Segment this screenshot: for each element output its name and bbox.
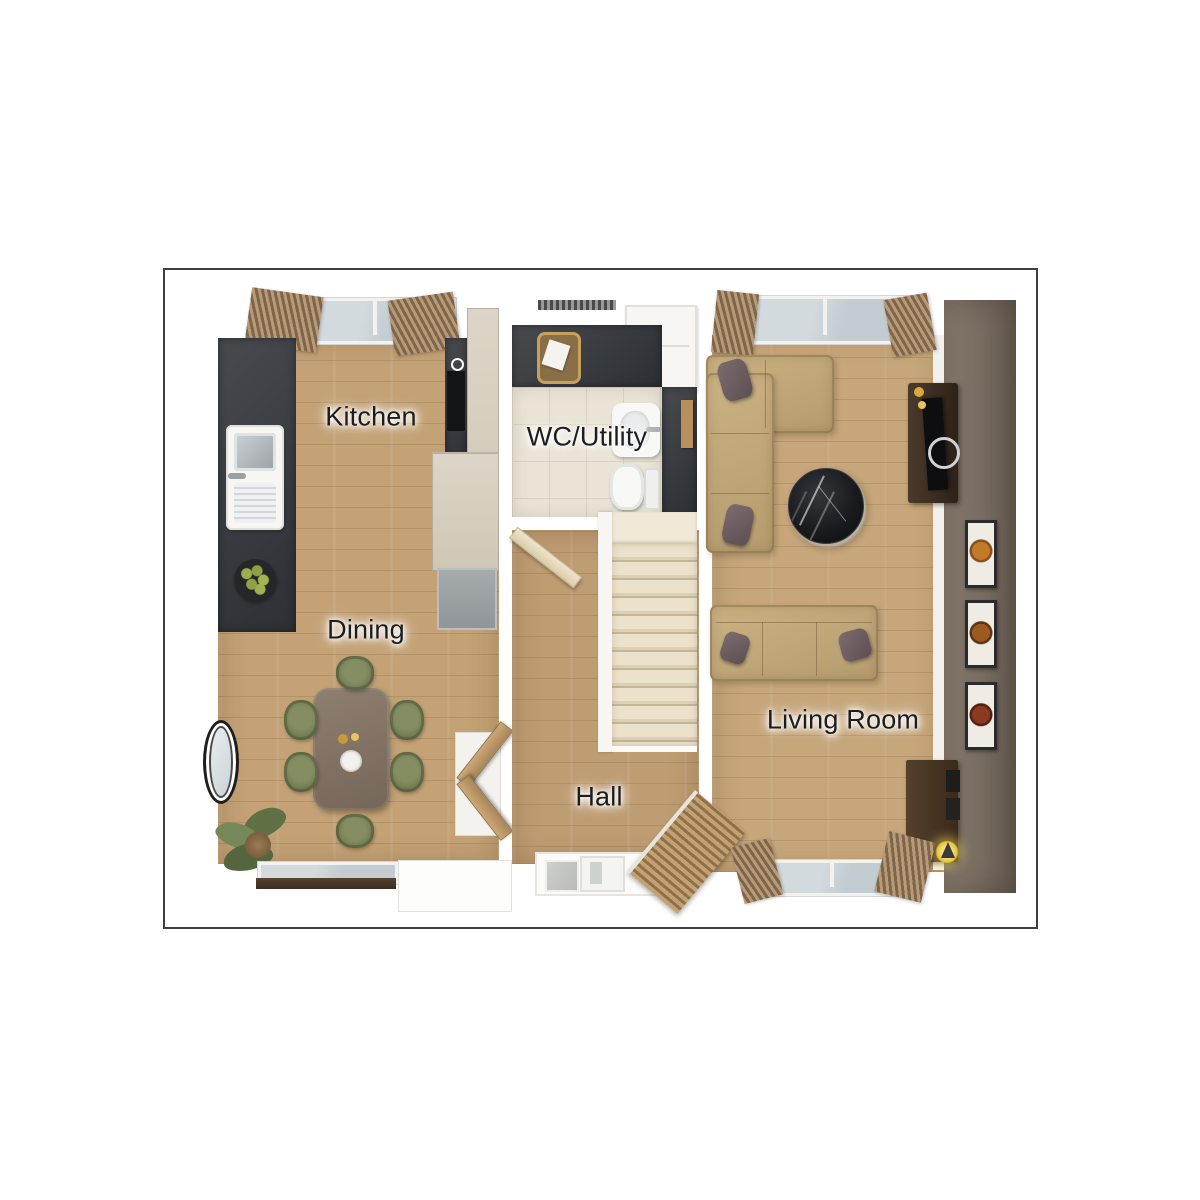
table-candles bbox=[338, 734, 348, 744]
laundry-basket bbox=[537, 332, 581, 384]
dining-chair-right-1 bbox=[390, 700, 424, 740]
sideboard-speaker bbox=[946, 770, 960, 792]
hob-control bbox=[451, 358, 464, 371]
front-door-sidelight bbox=[545, 860, 579, 892]
wc-shelf bbox=[681, 400, 693, 448]
dining-table bbox=[313, 688, 389, 810]
fridge bbox=[437, 568, 497, 630]
room-label-kitchen: Kitchen bbox=[325, 402, 416, 433]
room-label-wc-utility: WC/Utility bbox=[527, 422, 647, 453]
sofa-seam bbox=[716, 622, 872, 623]
sink-basin bbox=[234, 433, 276, 471]
front-door-pane bbox=[590, 862, 602, 884]
sofa-seam bbox=[765, 360, 766, 428]
towel bbox=[542, 339, 571, 371]
living-window-bottom-mullion bbox=[830, 863, 834, 887]
dining-chair-right-2 bbox=[390, 752, 424, 792]
dining-chair-left-2 bbox=[284, 752, 318, 792]
plan-frame: Kitchen Dining WC/Utility bbox=[163, 268, 1038, 929]
fruit-bowl bbox=[234, 559, 276, 601]
plant-pot bbox=[245, 832, 271, 858]
utility-worktop bbox=[512, 325, 662, 387]
stair-bottom-nosing bbox=[612, 746, 697, 752]
wall-art-frame-1 bbox=[965, 520, 997, 588]
sofa-seam bbox=[762, 622, 763, 676]
tv-media-unit bbox=[908, 383, 958, 503]
hob bbox=[446, 370, 466, 432]
table-centerpiece-bowl bbox=[340, 750, 362, 772]
room-label-living-room: Living Room bbox=[767, 705, 919, 736]
dining-window-blind bbox=[256, 878, 396, 889]
gold-ornament bbox=[914, 387, 924, 397]
room-label-hall: Hall bbox=[575, 782, 622, 813]
stair-stringer bbox=[598, 512, 612, 752]
dining-chair-left-1 bbox=[284, 700, 318, 740]
wall-mirror bbox=[203, 720, 239, 804]
stair-landing bbox=[612, 512, 697, 544]
sofa-seam bbox=[711, 433, 769, 434]
kitchen-window-mullion bbox=[373, 301, 377, 335]
table-lamp bbox=[935, 840, 959, 864]
round-coffee-table bbox=[788, 468, 864, 544]
front-door-leaf bbox=[580, 856, 625, 892]
living-curtain-top-left bbox=[711, 290, 759, 356]
staircase bbox=[598, 512, 697, 752]
dining-chair-bottom bbox=[336, 814, 374, 848]
wc-vent-window bbox=[538, 300, 616, 310]
kitchen-sink bbox=[226, 425, 284, 530]
lamp-shade bbox=[941, 842, 955, 858]
stair-steps bbox=[612, 544, 697, 746]
basin-tap bbox=[646, 427, 662, 432]
wall-art-frame-2 bbox=[965, 600, 997, 668]
wall-art-frame-3 bbox=[965, 682, 997, 750]
living-window-top-mullion bbox=[823, 299, 827, 335]
sofa-seam bbox=[711, 493, 769, 494]
sink-faucet bbox=[228, 473, 246, 479]
sink-drainer bbox=[234, 483, 276, 523]
tv-decor-ring bbox=[928, 437, 960, 469]
sofa-seam bbox=[816, 622, 817, 676]
toilet bbox=[610, 462, 662, 514]
toilet-cistern bbox=[644, 468, 660, 510]
room-label-dining: Dining bbox=[327, 615, 405, 646]
wall-bump-out bbox=[398, 860, 512, 912]
toilet-bowl bbox=[610, 464, 644, 510]
dining-chair-top bbox=[336, 656, 374, 690]
living-curtain-top-right bbox=[883, 293, 936, 358]
kitchen-base-cabinet bbox=[432, 452, 499, 571]
floor-plan-image: Kitchen Dining WC/Utility bbox=[0, 0, 1200, 1200]
